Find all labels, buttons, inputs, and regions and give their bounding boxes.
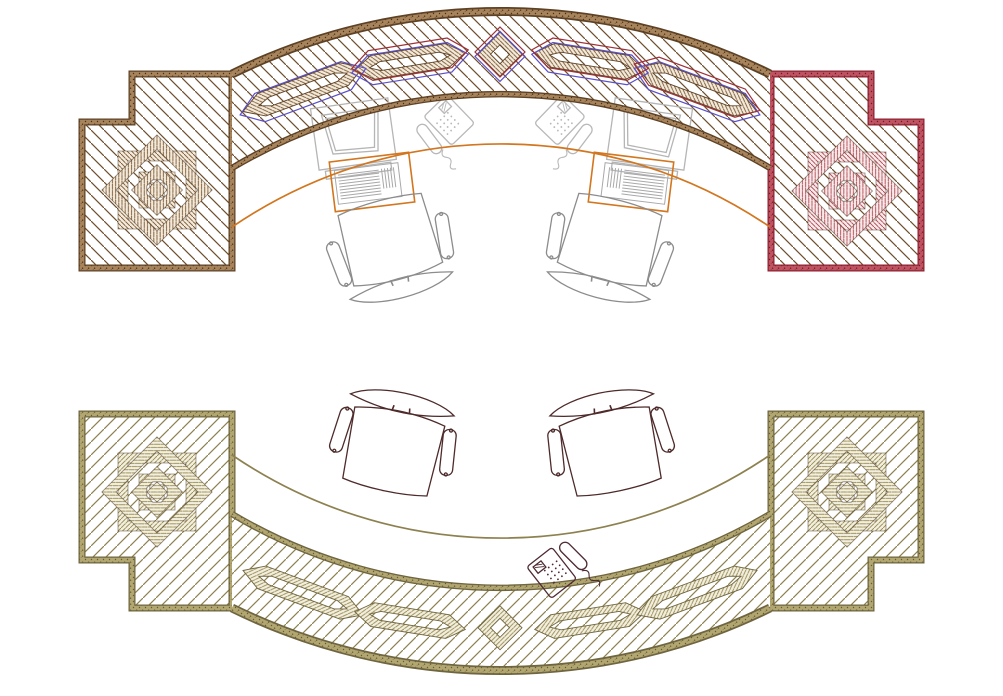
star-ornament-lower-left bbox=[102, 437, 212, 547]
telephone-upper-left bbox=[410, 94, 488, 173]
upper-counter-edge-arc bbox=[232, 144, 770, 227]
upper-right-end-cap bbox=[771, 74, 921, 268]
star-ornament-lower-right bbox=[792, 437, 902, 547]
chair-lower-left bbox=[322, 380, 467, 504]
star-ornament-upper-left bbox=[102, 135, 212, 245]
chairs bbox=[317, 184, 682, 503]
lower-counter bbox=[82, 414, 921, 671]
upper-left-end-cap bbox=[82, 74, 232, 268]
floor-plan-canvas bbox=[0, 0, 1003, 696]
lower-counter-edge-arc bbox=[232, 455, 770, 538]
upper-counter bbox=[82, 11, 921, 268]
telephone-upper-right bbox=[521, 94, 599, 173]
chair-lower-right bbox=[537, 380, 682, 504]
lower-right-end-cap bbox=[771, 414, 921, 608]
star-ornament-upper-right bbox=[792, 136, 902, 246]
lower-left-end-cap bbox=[82, 414, 232, 608]
